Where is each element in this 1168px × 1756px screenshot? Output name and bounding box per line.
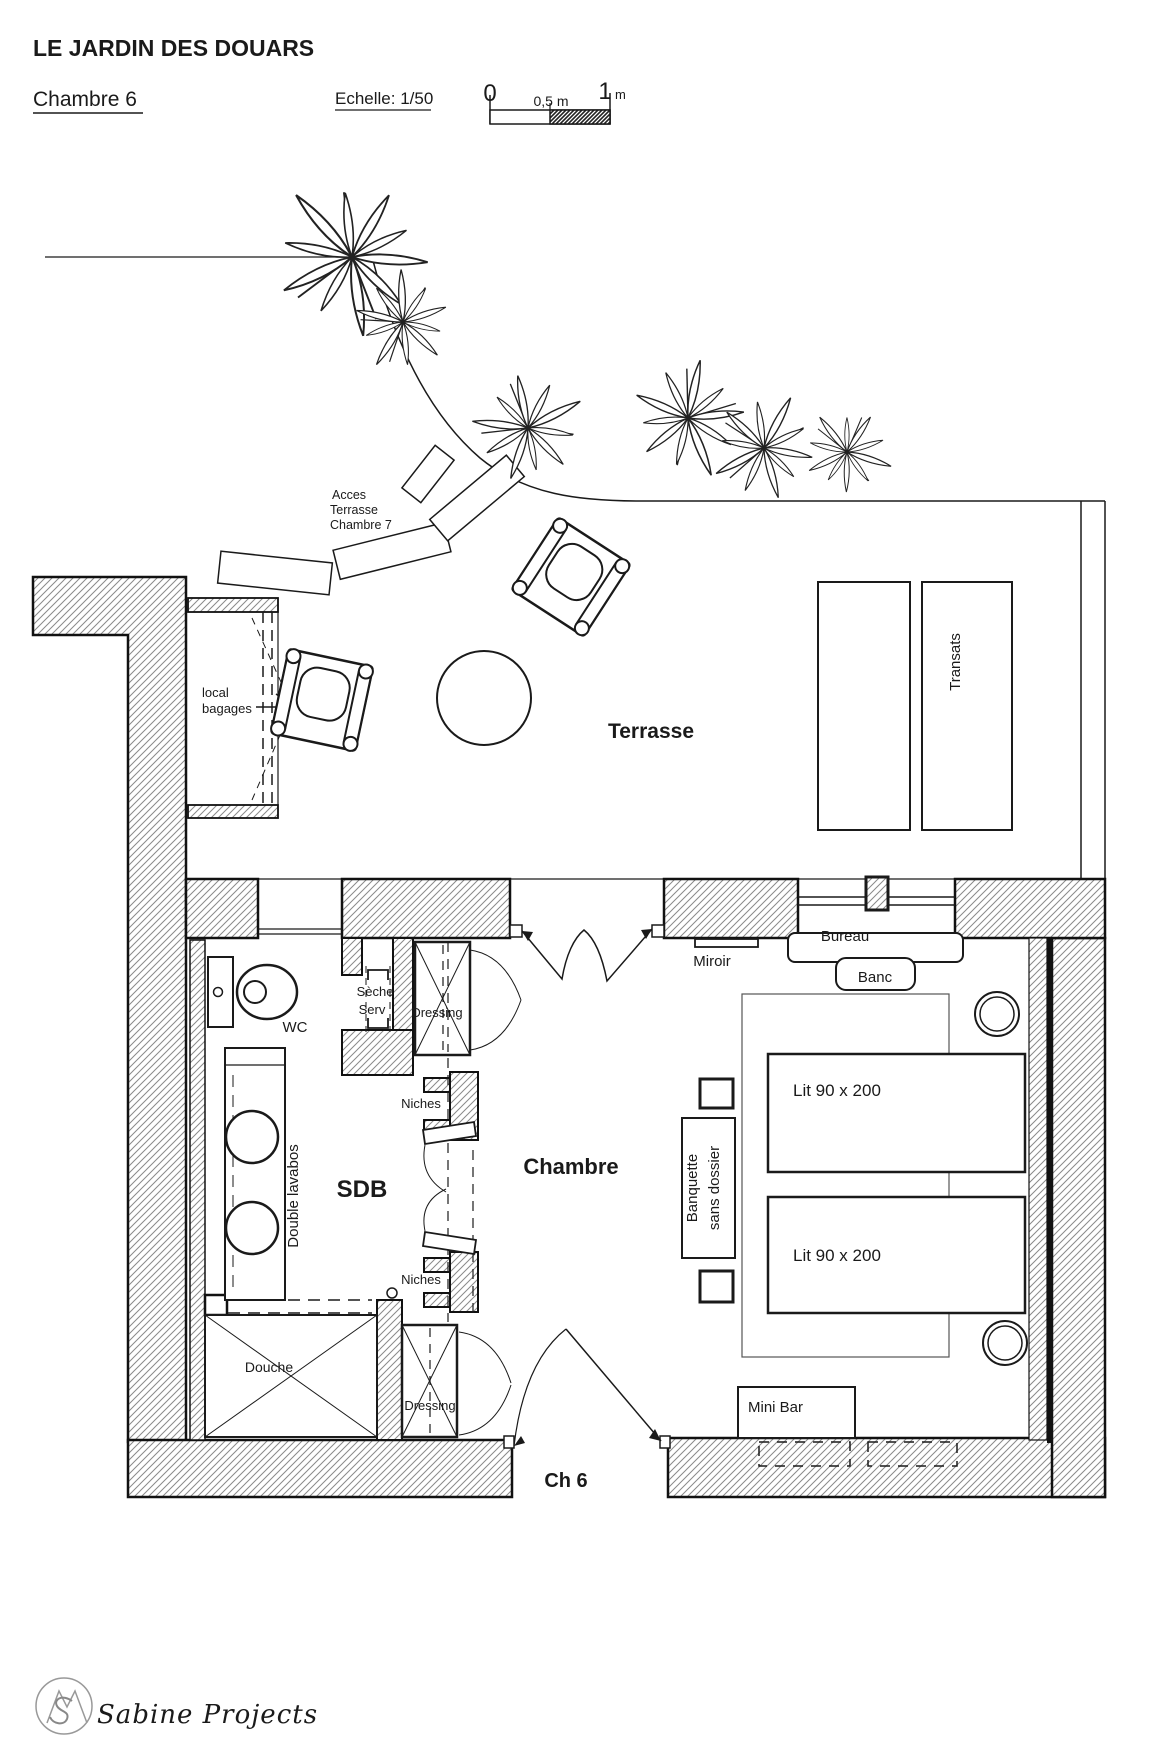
wall-bottom-right bbox=[668, 1438, 1105, 1497]
douche-dressing-wall bbox=[377, 1300, 402, 1440]
mirror-label: Miroir bbox=[693, 953, 731, 970]
palm-tree-5 bbox=[697, 387, 825, 515]
desk-label: Bureau bbox=[821, 928, 869, 945]
niche-block-2b bbox=[424, 1293, 450, 1307]
terrace-round-table bbox=[437, 651, 531, 745]
sink-2 bbox=[226, 1202, 278, 1254]
dressing-top-label: Dressing bbox=[411, 1005, 462, 1020]
entrance-label: Ch 6 bbox=[544, 1470, 587, 1492]
bedroom-label: Chambre bbox=[523, 1154, 618, 1179]
vanity-end-step bbox=[205, 1295, 227, 1315]
transat-2 bbox=[922, 582, 1012, 830]
wc-label: WC bbox=[283, 1019, 308, 1036]
entrance-door bbox=[514, 1329, 661, 1446]
bath-left-strip bbox=[190, 940, 205, 1440]
wc bbox=[208, 957, 297, 1027]
banquette-label-line1: Banquette bbox=[684, 1154, 701, 1222]
luggage-label-line2: bagages bbox=[202, 701, 252, 716]
scale-bar: 0 0,5 m 1 m bbox=[483, 78, 626, 124]
door-knob-dot bbox=[387, 1288, 397, 1298]
terrace-label: Terrasse bbox=[608, 720, 694, 743]
towel-dressing-wall bbox=[393, 938, 413, 1040]
palm-tree-3 bbox=[460, 365, 586, 492]
terrace-door bbox=[522, 929, 652, 981]
scale-unit-label: m bbox=[615, 87, 626, 102]
header: LE JARDIN DES DOUARS Chambre 6 Echelle: … bbox=[33, 35, 626, 124]
niches-bottom-label: Niches bbox=[401, 1272, 441, 1287]
niche-block-2a bbox=[424, 1258, 450, 1272]
minibar-label: Mini Bar bbox=[748, 1399, 803, 1416]
palm-tree-6 bbox=[788, 394, 899, 505]
mirror bbox=[695, 939, 758, 947]
transats bbox=[818, 582, 1012, 830]
wall-bottom-left bbox=[128, 1440, 512, 1497]
plan-svg: LE JARDIN DES DOUARS Chambre 6 Echelle: … bbox=[0, 0, 1168, 1756]
bed-2-label: Lit 90 x 200 bbox=[793, 1246, 881, 1265]
stool-top bbox=[975, 992, 1019, 1036]
niche-block-1a bbox=[424, 1078, 450, 1092]
door-jambs bbox=[504, 925, 670, 1448]
logo-text: Sabine Projects bbox=[97, 1700, 318, 1730]
side-table-top bbox=[700, 1079, 733, 1108]
right-inner-line bbox=[1047, 938, 1052, 1443]
bench-label: Banc bbox=[858, 969, 893, 986]
access-label-line2: Terrasse bbox=[330, 503, 378, 517]
transats-label: Transats bbox=[947, 633, 964, 691]
logo-s-icon bbox=[50, 1698, 72, 1724]
scale-half-label: 0,5 m bbox=[533, 93, 568, 109]
bed-1-label: Lit 90 x 200 bbox=[793, 1081, 881, 1100]
terrace-armchair-2 bbox=[270, 648, 374, 752]
mid-block bbox=[342, 1030, 413, 1075]
sink-1 bbox=[226, 1111, 278, 1163]
wall-top-1 bbox=[186, 879, 258, 938]
wall-top-2 bbox=[342, 879, 510, 938]
bed-1 bbox=[768, 1054, 1025, 1172]
logo: Sabine Projects bbox=[36, 1678, 318, 1734]
niche-spine-bottom bbox=[450, 1252, 478, 1312]
shower-label: Douche bbox=[245, 1359, 293, 1375]
dressing-bottom bbox=[402, 1325, 511, 1437]
page-title: LE JARDIN DES DOUARS bbox=[33, 35, 314, 61]
access-label: Acces Terrasse Chambre 7 bbox=[330, 488, 392, 532]
towel-label-line2: Serv bbox=[359, 1002, 386, 1017]
wall-right bbox=[1052, 938, 1105, 1497]
dressing-top bbox=[415, 942, 521, 1055]
dressing-bottom-label: Dressing bbox=[404, 1398, 455, 1413]
vanity-label: Double lavabos bbox=[285, 1144, 302, 1247]
niches-top-label: Niches bbox=[401, 1096, 441, 1111]
wall-top-3 bbox=[664, 879, 798, 938]
room-title: Chambre 6 bbox=[33, 88, 137, 111]
vanity bbox=[225, 1048, 285, 1300]
towel-label-line1: Sèche bbox=[357, 984, 394, 999]
access-label-line3: Chambre 7 bbox=[330, 518, 392, 532]
access-label-line1: Acces bbox=[332, 488, 366, 502]
banquette-label-line2: sans dossier bbox=[706, 1146, 723, 1230]
floor-plan-page: LE JARDIN DES DOUARS Chambre 6 Echelle: … bbox=[0, 0, 1168, 1756]
scale-label: Echelle: 1/50 bbox=[335, 89, 433, 108]
towel-dryer bbox=[366, 966, 390, 1032]
stool-bottom bbox=[983, 1321, 1027, 1365]
wall-left bbox=[33, 577, 186, 1442]
wall-top-4 bbox=[955, 879, 1105, 938]
transat-1 bbox=[818, 582, 910, 830]
terrace-armchair-1 bbox=[510, 516, 632, 638]
window-post bbox=[866, 877, 888, 910]
sdb-label: SDB bbox=[337, 1176, 388, 1203]
luggage-label-line1: local bbox=[202, 685, 229, 700]
towel-niche-left-stub bbox=[342, 938, 362, 975]
right-inner-strip bbox=[1029, 938, 1047, 1440]
logo-circle-icon bbox=[36, 1678, 92, 1734]
side-table-bottom bbox=[700, 1271, 733, 1302]
